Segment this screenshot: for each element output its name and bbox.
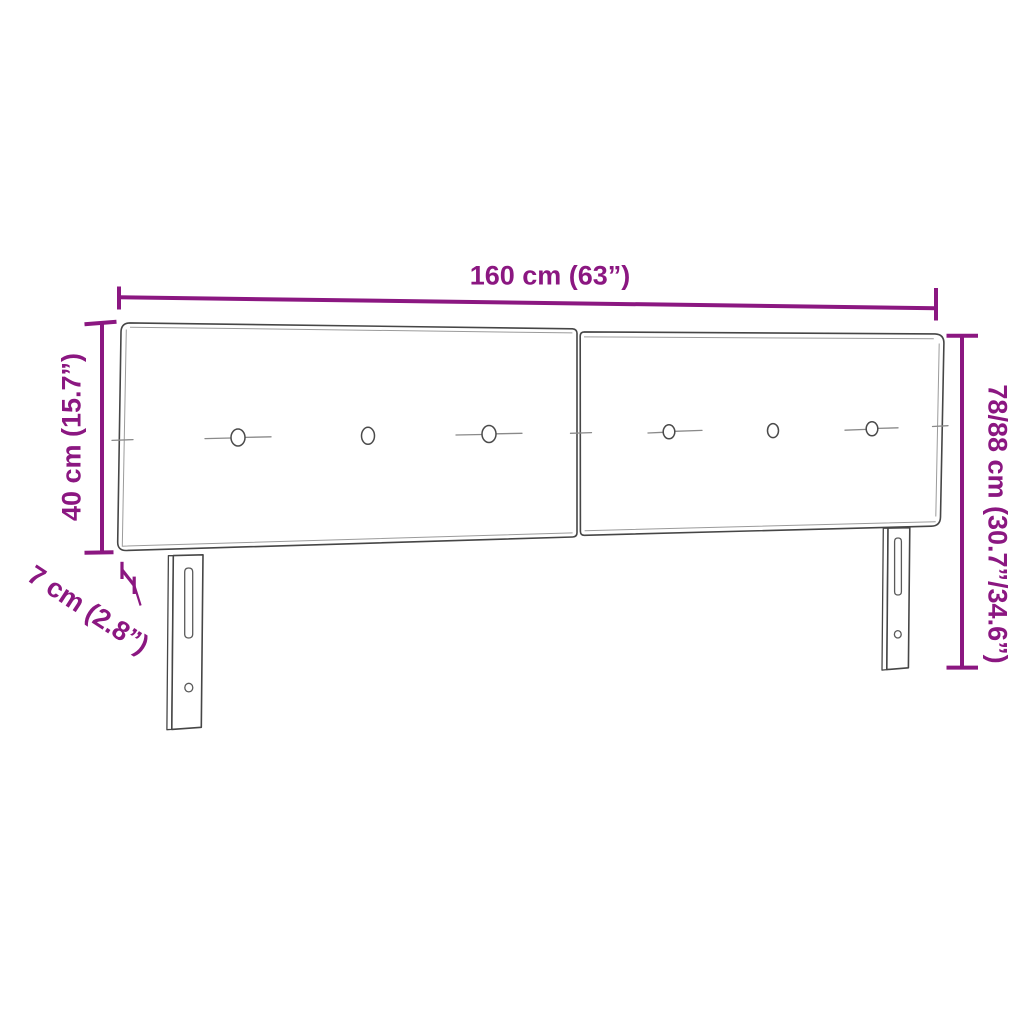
headboard-left-panel	[118, 323, 577, 551]
panel-height-dimension-label: 40 cm (15.7”)	[59, 353, 86, 521]
panel-height-dimension-line	[85, 322, 117, 553]
leg-hole	[894, 631, 901, 638]
button	[663, 425, 675, 439]
right-leg	[882, 528, 910, 670]
left-leg	[167, 555, 203, 730]
leg-slot	[895, 538, 902, 595]
total-height-dimension-line	[947, 336, 979, 668]
headboard-line-drawing	[0, 0, 1024, 1024]
product-dimension-diagram: 160 cm (63”) 40 cm (15.7”) 7 cm (2.8”) 7…	[0, 0, 1024, 1024]
width-dimension-line	[119, 287, 936, 321]
button	[768, 424, 779, 438]
button	[231, 429, 245, 446]
button	[866, 422, 878, 436]
button	[362, 427, 375, 444]
button	[482, 426, 496, 443]
width-dimension-label: 160 cm (63”)	[470, 263, 631, 290]
leg-slot	[185, 568, 193, 638]
leg-hole	[185, 683, 193, 692]
depth-dimension-mark	[122, 562, 141, 606]
headboard-right-panel	[580, 332, 944, 535]
total-height-dimension-label: 78/88 cm (30.7”/34.6”)	[984, 384, 1011, 663]
